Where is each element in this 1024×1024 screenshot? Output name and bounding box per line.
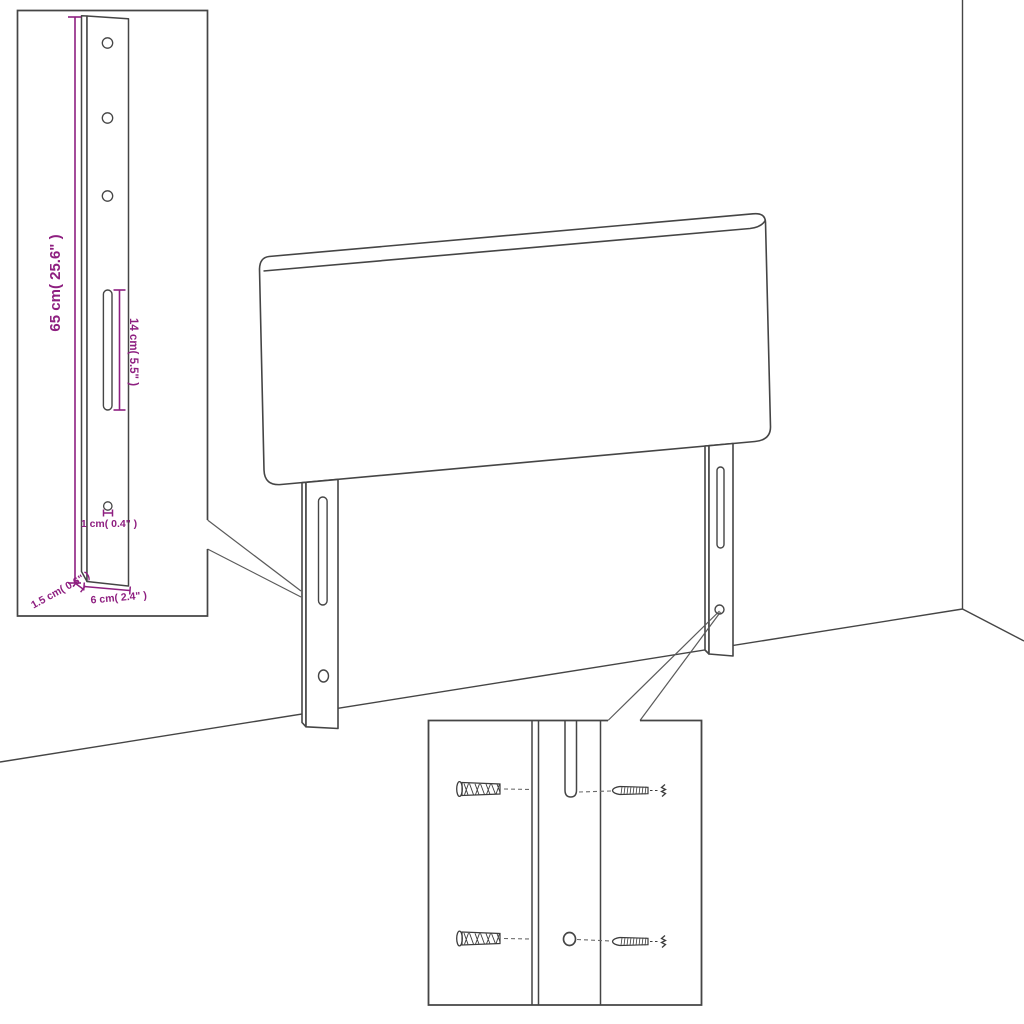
hardware-inset xyxy=(429,721,702,1006)
headboard-panel xyxy=(260,214,771,485)
leg-detail-inset: 65 cm( 25.6" ) 14 cm( 5.5" ) 1 cm( 0.4" … xyxy=(18,11,208,617)
dim-hole-label: 1 cm( 0.4" ) xyxy=(81,518,137,530)
callout-right-line-left xyxy=(608,611,720,721)
bracket-hole-3 xyxy=(102,191,112,201)
right-leg-slot xyxy=(717,467,724,548)
callout-right-line-right xyxy=(640,612,721,721)
bracket-hole-2 xyxy=(102,113,112,123)
bracket-hole-1 xyxy=(102,38,112,48)
left-leg-hole xyxy=(319,670,329,682)
callout-wedges xyxy=(208,520,721,721)
right-leg xyxy=(705,444,733,657)
floor-line-right xyxy=(963,609,1024,641)
left-leg-slot xyxy=(319,497,328,605)
dim-width-cap-left xyxy=(84,583,85,591)
headboard-mounting-diagram: 65 cm( 25.6" ) 14 cm( 5.5" ) 1 cm( 0.4" … xyxy=(0,0,1024,1024)
leg-detail-drawing xyxy=(82,16,129,586)
bracket-slot xyxy=(103,290,112,410)
bracket-bottom-hole xyxy=(104,502,112,510)
callout-left-line-top xyxy=(208,520,302,591)
bracket-side-face xyxy=(82,16,88,582)
dim-slot-label: 14 cm( 5.5" ) xyxy=(127,318,139,386)
left-leg xyxy=(302,479,338,728)
dim-height-label: 65 cm( 25.6" ) xyxy=(47,234,64,331)
